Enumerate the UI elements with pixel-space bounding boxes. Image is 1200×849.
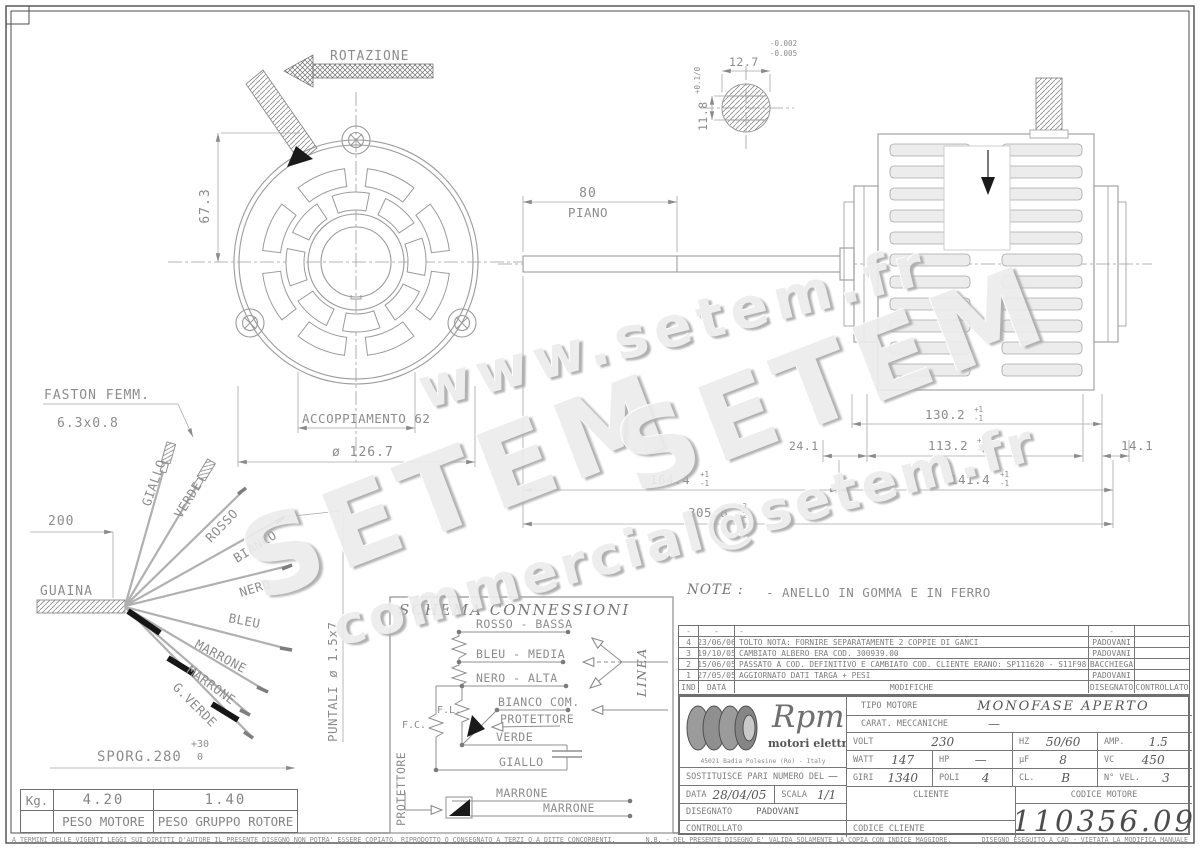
sostituisce-row: SOSTITUISCE PARI NUMERO DEL — (680, 767, 847, 785)
protector-symbol (467, 715, 485, 737)
hp-value: — (975, 753, 987, 767)
schema-marrone-2: MARRONE (543, 801, 595, 815)
controllato-label: CONTROLLATO (686, 824, 742, 834)
rev-by: PADOVANI (1089, 648, 1135, 659)
dim-141-tol-up: +1 (1000, 470, 1009, 479)
dim-305-tol-up: +2 (738, 502, 747, 511)
scala-label: SCALA (775, 790, 807, 800)
volt-value: 230 (931, 735, 954, 749)
scala-value: 1/1 (817, 788, 836, 802)
rev-date: 15/06/05 (699, 659, 735, 670)
giri-value: 1340 (887, 771, 918, 785)
coupling-dim: ACCOPPIAMENTO 62 (302, 411, 430, 426)
rev-by: - (1089, 626, 1135, 637)
faston-label-2: 6.3x0.8 (57, 416, 119, 431)
schema-linea: LINEA (634, 647, 649, 698)
rev-text: PASSATO A COD. DEFINITIVO E CAMBIATO COD… (735, 659, 1089, 670)
cl-value: B (1061, 771, 1070, 785)
puntali-label: PUNTALI ø 1.5x7 (325, 622, 340, 742)
shaft-height-tol: +0.1/0 (693, 66, 702, 94)
hz-cell: HZ 50/60 (1012, 732, 1097, 750)
motor-cable (246, 70, 317, 167)
disclaimer-mid: N.B. - DEL PRESENTE DISEGNO E' VALIDA SO… (646, 836, 952, 844)
data-label: DATA (680, 790, 706, 800)
flat-length-dim: 80 (579, 186, 597, 201)
tipo-motore-label: TIPO MOTORE (861, 701, 917, 711)
side-view-dimensions (523, 196, 1129, 528)
wire-label-bleu: BLEU (227, 610, 261, 631)
revision-table: - - - - 4 23/06/06 TOLTO NOTA: FORNIRE S… (678, 625, 1190, 695)
rev-ind: 2 (679, 659, 699, 670)
rev-ind: - (679, 626, 699, 637)
amp-cell: AMP. 1.5 (1097, 732, 1192, 750)
peso-motore-label: PESO MOTORE (54, 811, 154, 832)
volt-cell: VOLT 230 (847, 732, 1012, 750)
nvel-value: 3 (1162, 771, 1170, 785)
shaft-width-dim: 12.7 (729, 55, 759, 69)
note-text: - ANELLO IN GOMMA E IN FERRO (766, 585, 991, 600)
schema-fc: F.C. (402, 720, 426, 731)
amp-value: 1.5 (1149, 735, 1168, 749)
rev-chk (1135, 637, 1189, 648)
footer-disclaimer: A TERMINI DELLE VIGENTI LEGGI SUI DIRITT… (12, 835, 1188, 846)
giri-label: GIRI (853, 773, 873, 783)
kg-empty-cell (21, 811, 54, 832)
callout-box (944, 146, 1010, 250)
rev-by: PADOVANI (1089, 637, 1135, 648)
schema-fl: F.L. (437, 705, 461, 716)
disegnato-label: DISEGNATO (686, 807, 732, 817)
watt-cell: WATT 147 (847, 750, 932, 768)
codice-cliente-label: CODICE CLIENTE (853, 824, 925, 834)
uf-value: 8 (1059, 753, 1067, 767)
peso-motore-value: 4.20 (54, 790, 154, 811)
schema-giallo: GIALLO (499, 755, 544, 769)
codice-motore-header: CODICE MOTORE (1015, 786, 1192, 803)
carat-row: CARAT. MECCANICHE — (847, 715, 1192, 732)
shaft-height-dim: 11.8 (696, 101, 710, 131)
tipo-motore-row: TIPO MOTORE MONOFASE APERTO (847, 697, 1192, 715)
screw-boss (236, 309, 264, 337)
cl-cell: CL. B (1012, 768, 1097, 786)
dim-305-tol-dn: -2 (738, 511, 747, 520)
rev-col-modifiche: MODIFICHE (735, 681, 1089, 692)
disclaimer-left: A TERMINI DELLE VIGENTI LEGGI SUI DIRITT… (12, 836, 615, 844)
schema-bleu: BLEU - MEDIA (476, 647, 565, 661)
nvel-cell: N° VEL. 3 (1097, 768, 1192, 786)
dim-130: 130.2 (925, 407, 965, 422)
title-block: Rpm motori elettrici 45021 Badia Polesin… (678, 695, 1190, 835)
rev-ind: 1 (679, 670, 699, 681)
wire-label-nero: NERO (237, 576, 272, 600)
weights-table: Kg. 4.20 1.40 PESO MOTORE PESO GRUPPO RO… (20, 789, 298, 833)
volt-label: VOLT (853, 737, 873, 747)
rev-col-controllato: CONTROLLATO (1135, 681, 1189, 692)
rev-chk (1135, 626, 1189, 637)
wire-label-verde: VERDE (171, 479, 205, 521)
rev-col-ind: IND (679, 681, 699, 692)
dim-164-tol-up: +1 (700, 470, 709, 479)
disegnato-value: PADOVANI (756, 807, 799, 817)
dim-14: 14.1 (1121, 438, 1153, 453)
rev-date: 23/06/06 (699, 637, 735, 648)
guaina-label: GUAINA (40, 584, 93, 599)
shaft-width-tol-up: -0.002 (770, 39, 797, 48)
rev-date: 27/05/05 (699, 670, 735, 681)
cliente-label: CLIENTE (913, 790, 949, 800)
peso-rotore-value: 1.40 (154, 790, 297, 811)
rotation-label: ROTAZIONE (330, 49, 409, 64)
vc-label: VC (1104, 755, 1114, 765)
screw-boss (448, 309, 476, 337)
uf-label: μF (1019, 755, 1029, 765)
dim-113-tol-up: +1 (977, 436, 986, 445)
schema-bianco: BIANCO COM. (498, 695, 580, 709)
peso-rotore-label: PESO GRUPPO ROTORE (154, 811, 297, 832)
schema-marrone-1: MARRONE (496, 786, 548, 800)
brand-subtitle: motori elettrici (768, 737, 847, 750)
sporg-tol-dn: 0 (197, 752, 203, 763)
data-scala-row: DATA 28/04/05 SCALA 1/1 (680, 785, 847, 803)
rev-ind: 4 (679, 637, 699, 648)
wire-label-giallo: GIALLO (139, 458, 169, 508)
hz-value: 50/60 (1046, 735, 1081, 749)
rev-text: TOLTO NOTA: FORNIRE SEPARATAMENTE 2 COPP… (735, 637, 1089, 648)
faston-label-1: FASTON FEMM. (44, 388, 150, 403)
carat-value: — (988, 717, 1000, 731)
dim-24: 24.1 (789, 439, 819, 453)
dim-113: 113.2 (928, 438, 968, 453)
poli-value: 4 (982, 771, 990, 785)
hz-label: HZ (1019, 737, 1029, 747)
protector-symbol-2 (449, 799, 470, 816)
company-address: 45021 Badia Polesine (Ro) - Italy (680, 758, 846, 765)
corner-mark (6, 6, 29, 24)
rev-text: CAMBIATO ALBERO ERA COD. 300939.00 (735, 648, 1089, 659)
dim-305: 305.8 (688, 505, 728, 520)
schema-nero: NERO - ALTA (476, 671, 558, 685)
drawing-sheet: ROTAZIONE 67.3 ACCOPPIAMENTO 62 ø 126.7 … (0, 0, 1200, 849)
sostituisce-label: SOSTITUISCE PARI NUMERO DEL (686, 772, 824, 782)
sporg-tol-up: +30 (191, 739, 209, 750)
schema-rosso: ROSSO - BASSA (476, 617, 573, 631)
watt-value: 147 (891, 753, 914, 767)
dim-164: 164.4 (650, 472, 690, 487)
nvel-label: N° VEL. (1104, 773, 1140, 783)
side-cable (1030, 78, 1068, 138)
tipo-motore-value: MONOFASE APERTO (977, 699, 1149, 714)
rotation-arrow: ROTAZIONE (284, 49, 433, 87)
company-logo-cell: Rpm motori elettrici 45021 Badia Polesin… (680, 697, 847, 767)
vc-cell: VC 450 (1097, 750, 1192, 768)
rev-text: AGGIORNATO DATI TARGA + PESI (735, 670, 1089, 681)
amp-label: AMP. (1104, 737, 1124, 747)
disegnato-row: DISEGNATO PADOVANI (680, 803, 847, 820)
rev-by: BACCHIEGA (1089, 659, 1135, 670)
schema-protettore-side: PROTETTORE (394, 752, 408, 826)
poli-cell: POLI 4 (932, 768, 1012, 786)
shaft-width-tol-dn: -0.005 (770, 49, 797, 58)
sheath (37, 600, 125, 613)
shaft-section-detail (712, 71, 770, 132)
dim-113-tol-dn: -1 (977, 445, 986, 454)
kg-unit: Kg. (21, 790, 54, 811)
dim-141-tol-dn: -1 (1000, 479, 1009, 488)
front-diameter-dim: ø 126.7 (332, 445, 394, 460)
hp-cell: HP — (932, 750, 1012, 768)
codice-motore-value: 110356.09 (1015, 803, 1192, 837)
dim-130-tol-up: +1 (974, 405, 983, 414)
cliente-value-cell (847, 803, 1015, 820)
rev-chk (1135, 670, 1189, 681)
dim-164-tol-dn: -1 (700, 479, 709, 488)
shaft (523, 256, 854, 272)
disclaimer-right: DISEGNO ESEGUITO A CAD - VIETATA LA MODI… (982, 836, 1188, 844)
hp-label: HP (939, 755, 949, 765)
dim-141: 141.4 (950, 472, 990, 487)
side-view (523, 78, 1126, 390)
flat-label: PIANO (568, 205, 608, 220)
note-label: NOTE : (686, 582, 744, 598)
poli-label: POLI (939, 773, 959, 783)
vc-value: 450 (1142, 753, 1165, 767)
rev-ind: 3 (679, 648, 699, 659)
rev-chk (1135, 659, 1189, 670)
brand-name: Rpm (772, 699, 845, 735)
rev-date: - (699, 626, 735, 637)
front-height-dim: 67.3 (198, 188, 213, 223)
dim-130-tol-dn: -1 (974, 414, 983, 423)
sporg-dim: SPORG.280 (97, 749, 182, 765)
data-value: 28/04/05 (712, 788, 766, 802)
rev-col-data: DATA (699, 681, 735, 692)
schema-verde: VERDE (496, 730, 533, 744)
rev-by: PADOVANI (1089, 670, 1135, 681)
cliente-header: CLIENTE (847, 786, 1015, 803)
schema-protettore: PROTETTORE (500, 712, 574, 726)
rev-chk (1135, 648, 1189, 659)
rev-date: 19/10/05 (699, 648, 735, 659)
rev-text: - (735, 626, 1089, 637)
dim-200: 200 (48, 514, 74, 529)
giri-cell: GIRI 1340 (847, 768, 932, 786)
watt-label: WATT (853, 755, 873, 765)
rpm-logo-icon (685, 703, 765, 753)
sostituisce-value: — (828, 771, 838, 782)
carat-label: CARAT. MECCANICHE (861, 719, 948, 729)
codice-motore-label: CODICE MOTORE (1071, 790, 1138, 800)
rev-col-disegnato: DISEGNATO (1089, 681, 1135, 692)
uf-cell: μF 8 (1012, 750, 1097, 768)
cl-label: CL. (1019, 773, 1034, 783)
